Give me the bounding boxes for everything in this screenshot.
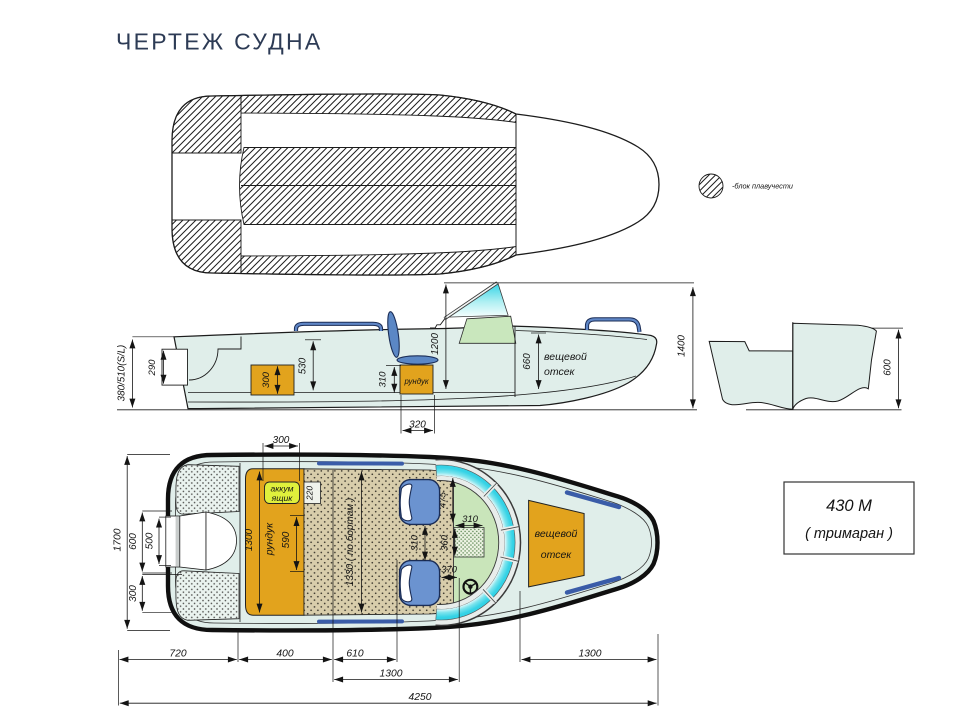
svg-text:380/510(S/L): 380/510(S/L) — [117, 345, 128, 402]
svg-text:4250: 4250 — [409, 692, 432, 703]
svg-text:530: 530 — [298, 357, 309, 374]
svg-text:рундук: рундук — [264, 522, 276, 556]
svg-text:220: 220 — [305, 486, 315, 501]
svg-text:430 М: 430 М — [826, 497, 872, 515]
svg-text:( тримаран ): ( тримаран ) — [805, 526, 893, 542]
svg-text:-блок плавучести: -блок плавучести — [732, 182, 793, 191]
svg-text:1300: 1300 — [579, 649, 602, 660]
svg-text:отсек: отсек — [544, 366, 576, 378]
svg-text:370: 370 — [441, 565, 458, 576]
svg-text:290: 290 — [147, 359, 158, 377]
svg-text:360: 360 — [440, 534, 451, 551]
svg-text:300: 300 — [128, 585, 139, 602]
svg-text:310: 310 — [378, 371, 389, 388]
svg-text:400: 400 — [276, 649, 293, 660]
svg-text:1400: 1400 — [677, 335, 688, 357]
svg-text:720: 720 — [169, 649, 186, 660]
svg-text:590: 590 — [281, 531, 292, 548]
svg-text:1200: 1200 — [430, 333, 441, 355]
svg-text:500: 500 — [145, 532, 156, 549]
svg-text:1330 ( по бортам ): 1330 ( по бортам ) — [344, 498, 356, 586]
svg-text:300: 300 — [273, 435, 290, 446]
svg-text:600: 600 — [128, 533, 139, 550]
svg-text:1700: 1700 — [113, 528, 124, 551]
svg-text:отсек: отсек — [541, 549, 573, 561]
svg-text:300: 300 — [261, 371, 272, 388]
svg-text:1300: 1300 — [244, 528, 255, 551]
svg-text:ящик: ящик — [271, 493, 294, 503]
svg-text:310: 310 — [462, 514, 479, 525]
svg-text:рундук: рундук — [403, 377, 428, 386]
svg-text:вещевой: вещевой — [535, 528, 578, 540]
svg-text:660: 660 — [522, 353, 533, 370]
svg-text:1300: 1300 — [380, 669, 403, 680]
svg-text:ЧЕРТЕЖ СУДНА: ЧЕРТЕЖ СУДНА — [116, 29, 323, 55]
svg-text:320: 320 — [409, 420, 426, 431]
svg-text:аккум: аккум — [270, 484, 293, 494]
svg-text:600: 600 — [883, 359, 894, 376]
svg-text:310: 310 — [410, 534, 421, 551]
svg-text:610: 610 — [346, 649, 363, 660]
svg-text:вещевой: вещевой — [544, 351, 587, 363]
